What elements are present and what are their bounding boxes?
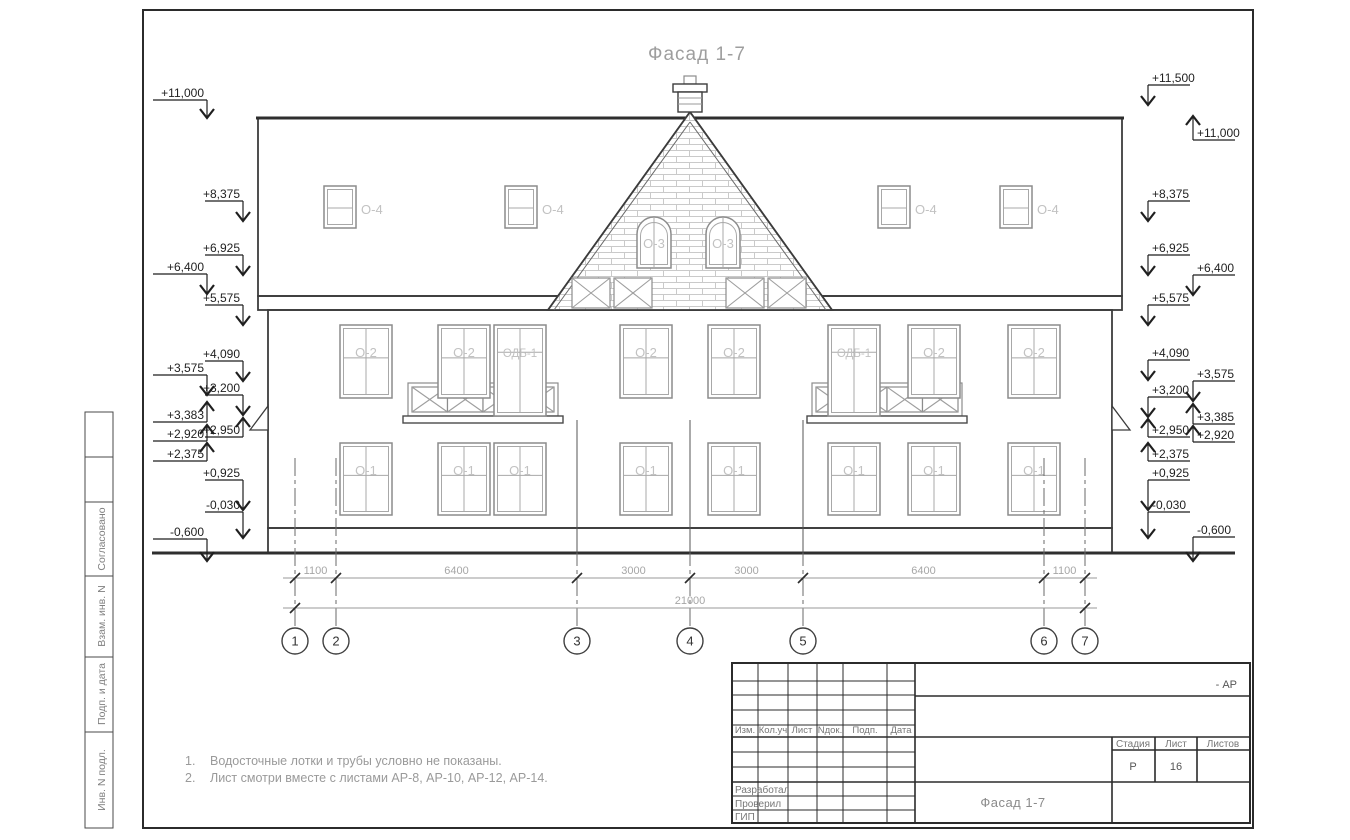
elevation-value: +11,000 [1197, 126, 1240, 140]
elevation-value: +3,383 [167, 408, 204, 422]
chimney [673, 76, 707, 112]
elevation-value: +11,000 [161, 86, 204, 100]
dormer-window: О-4 [324, 186, 383, 228]
col-podp: Подп. [852, 725, 877, 736]
row-gip: ГИП [735, 812, 755, 823]
window-label: О-1 [509, 463, 531, 478]
elevation-value: +6,400 [167, 260, 204, 274]
elevation-value: +3,200 [203, 381, 240, 395]
elevation-value: +0,925 [203, 466, 240, 480]
window-label: ОДБ-1 [503, 348, 537, 360]
gable-window-label: О-3 [712, 236, 734, 251]
window: О-2 [340, 325, 392, 398]
window: О-2 [1008, 325, 1060, 398]
doc-code: - АР [1216, 679, 1237, 691]
window-label: ОДБ-1 [837, 348, 871, 360]
elevation-value: -0,030 [1152, 498, 1186, 512]
sheet-number: 16 [1170, 761, 1182, 773]
elevation-value: +8,375 [1152, 187, 1189, 201]
elevation-value: +2,950 [203, 423, 240, 437]
axis-number: 7 [1081, 634, 1088, 649]
col-data: Дата [890, 725, 912, 736]
dim-total-value: 21000 [675, 595, 706, 607]
elevation-value: +4,090 [1152, 346, 1189, 360]
elevation-mark: +11,000 [153, 86, 214, 118]
col-list: Лист [792, 725, 813, 736]
gable-arched-window: О-3 [637, 217, 671, 268]
window: О-2 [438, 325, 490, 398]
elevation-value: -0,600 [170, 525, 204, 539]
elevation-value: +4,090 [203, 347, 240, 361]
window-label: О-2 [1023, 345, 1045, 360]
elevation-mark: +6,925 [203, 241, 250, 275]
elevation-mark: +3,575 [1186, 367, 1235, 401]
row-checked: Проверил [735, 799, 781, 810]
row-developed: Разработал [735, 784, 790, 796]
window: О-1 [908, 443, 960, 515]
col-koluch: Кол.уч [759, 725, 788, 736]
elevation-mark: +5,575 [1141, 291, 1190, 325]
elevation-value: +3,200 [1152, 383, 1189, 397]
window-label: О-1 [923, 463, 945, 478]
dim-value: 6400 [911, 565, 935, 577]
elevation-mark: +2,920 [1186, 426, 1235, 442]
dim-value: 1100 [1053, 565, 1077, 577]
dormer-window-label: О-4 [915, 202, 937, 217]
elevation-value: +2,375 [1152, 447, 1189, 461]
right-ledge [1112, 406, 1130, 430]
elevation-mark: +11,500 [1141, 71, 1195, 105]
note-number: 2. [185, 771, 195, 785]
window-label: О-1 [355, 463, 377, 478]
stage-value: Р [1129, 761, 1136, 773]
elevation-mark: +2,375 [153, 443, 214, 461]
window-label: О-2 [453, 345, 475, 360]
elevation-mark: -0,600 [153, 525, 214, 561]
dormer-window-label: О-4 [542, 202, 564, 217]
col-sheet: Лист [1165, 739, 1187, 750]
axis-number: 3 [573, 634, 580, 649]
window: О-2 [908, 325, 960, 398]
dormer-window-label: О-4 [361, 202, 383, 217]
elevation-value: +5,575 [1152, 291, 1189, 305]
elevation-value: +0,925 [1152, 466, 1189, 480]
elevation-mark: +6,400 [1186, 261, 1235, 295]
window: О-2 [708, 325, 760, 398]
left-attribute-column: Согласовано Взам. инв. N Подп. и дата Ин… [85, 412, 113, 828]
elevation-mark: +8,375 [203, 187, 250, 221]
elevation-mark: +5,575 [203, 291, 250, 325]
elevation-value: +6,925 [1152, 241, 1189, 255]
title-block: Изм. Кол.уч Лист Nдок. Подп. Дата Разраб… [732, 663, 1250, 823]
elevation-mark: +8,375 [1141, 187, 1190, 221]
elevation-value: -0,030 [206, 498, 240, 512]
window-label: О-2 [635, 345, 657, 360]
side-label-approved: Согласовано [96, 507, 108, 570]
left-ledge [250, 406, 268, 430]
side-label-podp: Подп. и дата [96, 663, 108, 725]
window: О-1 [1008, 443, 1060, 515]
facade [152, 76, 1235, 553]
window: О-1 [494, 443, 546, 515]
axis-number: 4 [686, 634, 693, 649]
dim-value: 6400 [444, 565, 468, 577]
elevation-value: +2,950 [1152, 423, 1189, 437]
elevation-value: +5,575 [203, 291, 240, 305]
elevation-mark: +4,090 [203, 347, 250, 381]
elevation-value: +11,500 [1152, 71, 1195, 85]
elevation-value: +6,925 [203, 241, 240, 255]
gable-window-label: О-3 [643, 236, 665, 251]
elevation-value: +8,375 [203, 187, 240, 201]
stamp-doc-title: Фасад 1-7 [980, 795, 1045, 810]
dormer-window-label: О-4 [1037, 202, 1059, 217]
elevation-mark: +2,375 [1141, 443, 1190, 461]
window-label: О-2 [355, 345, 377, 360]
dormer-window: О-4 [505, 186, 564, 228]
note-text: Водосточные лотки и трубы условно не пок… [210, 754, 502, 768]
col-sheets: Листов [1207, 739, 1240, 750]
dim-value: 3000 [621, 565, 645, 577]
elevation-mark: +6,925 [1141, 241, 1190, 275]
balcony-door: ОДБ-1 [828, 325, 880, 416]
elevation-value: +3,575 [1197, 367, 1234, 381]
gable-arched-window: О-3 [706, 217, 740, 268]
side-label-inv: Инв. N подл. [96, 749, 108, 811]
elevation-value: +3,385 [1197, 410, 1234, 424]
elevation-value: +2,920 [167, 427, 204, 441]
elevation-mark: +3,200 [203, 381, 250, 415]
window-label: О-2 [723, 345, 745, 360]
note-number: 1. [185, 754, 195, 768]
elevation-mark: +3,200 [1141, 383, 1190, 417]
elevation-mark: +11,000 [1186, 116, 1240, 140]
balcony-door: ОДБ-1 [494, 325, 546, 416]
dim-value: 1100 [304, 565, 328, 577]
elevation-mark: +2,950 [1141, 419, 1190, 437]
elevation-value: +6,400 [1197, 261, 1234, 275]
facade-drawing-sheet: Согласовано Взам. инв. N Подп. и дата Ин… [0, 0, 1350, 840]
col-izm: Изм. [735, 725, 755, 736]
axis-number: 6 [1040, 634, 1047, 649]
dormer-window: О-4 [1000, 186, 1059, 228]
window-label: О-1 [723, 463, 745, 478]
window: О-1 [438, 443, 490, 515]
window: О-1 [620, 443, 672, 515]
elevation-value: -0,600 [1197, 523, 1231, 537]
dim-value: 3000 [734, 565, 758, 577]
col-stage: Стадия [1116, 739, 1150, 750]
window: О-1 [708, 443, 760, 515]
axis-number: 1 [291, 634, 298, 649]
window: О-1 [340, 443, 392, 515]
dormer-window: О-4 [878, 186, 937, 228]
balcony-slab [807, 416, 967, 423]
window: О-1 [828, 443, 880, 515]
window-label: О-2 [923, 345, 945, 360]
elevation-mark: +3,385 [1186, 404, 1235, 424]
note-text: Лист смотри вместе с листами АР-8, АР-10… [210, 771, 548, 785]
elevation-mark: +6,400 [153, 260, 214, 294]
elevation-value: +2,375 [167, 447, 204, 461]
elevation-mark: +3,383 [153, 402, 214, 422]
drawing-title: Фасад 1-7 [648, 44, 746, 65]
notes: 1. Водосточные лотки и трубы условно не … [185, 754, 548, 785]
window-label: О-1 [453, 463, 475, 478]
balcony-slab [403, 416, 563, 423]
window-label: О-1 [843, 463, 865, 478]
axis-number: 5 [799, 634, 806, 649]
window: О-2 [620, 325, 672, 398]
window-label: О-1 [1023, 463, 1045, 478]
col-ndok: Nдок. [818, 725, 842, 736]
axis-grid: 1234567 [282, 420, 1098, 654]
side-label-vzam: Взам. инв. N [96, 585, 108, 646]
elevation-mark: +4,090 [1141, 346, 1190, 380]
window-label: О-1 [635, 463, 657, 478]
elevation-value: +3,575 [167, 361, 204, 375]
elevation-mark: -0,600 [1186, 523, 1235, 561]
axis-number: 2 [332, 634, 339, 649]
elevation-value: +2,920 [1197, 428, 1234, 442]
